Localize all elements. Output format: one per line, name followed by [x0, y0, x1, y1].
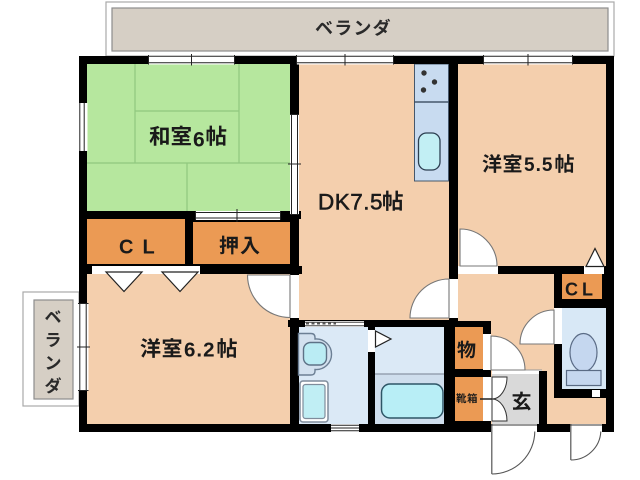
- svg-text:6: 6: [193, 129, 205, 152]
- svg-text:6.2: 6.2: [184, 339, 216, 362]
- svg-text:CL: CL: [565, 280, 597, 300]
- svg-text:5.5: 5.5: [524, 155, 553, 176]
- svg-text:DK7.5: DK7.5: [318, 190, 383, 215]
- svg-text:CL: CL: [119, 237, 164, 259]
